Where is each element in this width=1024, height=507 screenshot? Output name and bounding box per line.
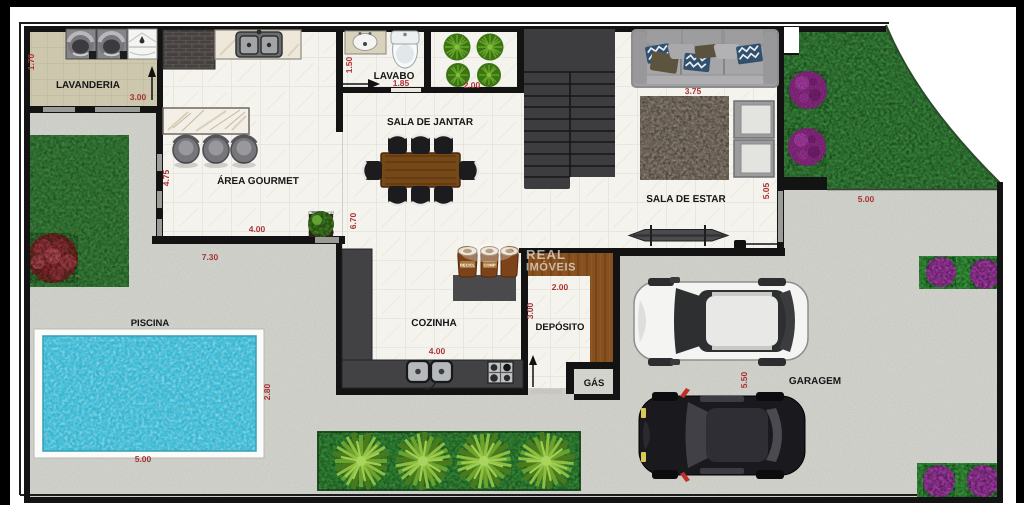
svg-text:REAL: REAL: [526, 247, 566, 262]
svg-text:3.75: 3.75: [685, 86, 702, 96]
svg-text:1.50: 1.50: [344, 56, 354, 73]
svg-text:IMÓVEIS: IMÓVEIS: [526, 261, 576, 274]
svg-text:RECICL: RECICL: [460, 263, 475, 268]
svg-text:7.30: 7.30: [202, 252, 219, 262]
svg-text:1.85: 1.85: [393, 78, 410, 88]
svg-text:GARAGEM: GARAGEM: [789, 376, 841, 387]
svg-text:SALA DE ESTAR: SALA DE ESTAR: [646, 194, 726, 205]
svg-text:DEPÓSITO: DEPÓSITO: [536, 321, 585, 333]
svg-text:4.00: 4.00: [249, 224, 266, 234]
svg-text:3.00: 3.00: [525, 302, 535, 319]
svg-text:6.70: 6.70: [348, 212, 358, 229]
svg-text:4.00: 4.00: [429, 346, 446, 356]
svg-text:5.00: 5.00: [858, 194, 875, 204]
svg-text:5.05: 5.05: [761, 182, 771, 199]
svg-text:2.00: 2.00: [552, 282, 569, 292]
svg-text:2.00: 2.00: [464, 80, 481, 90]
svg-text:5.50: 5.50: [739, 371, 749, 388]
svg-text:PISCINA: PISCINA: [131, 318, 170, 329]
svg-text:ÁREA GOURMET: ÁREA GOURMET: [217, 175, 299, 187]
svg-text:GÁS: GÁS: [584, 377, 605, 389]
svg-text:COZINHA: COZINHA: [411, 318, 457, 329]
svg-text:1.70: 1.70: [26, 53, 36, 70]
svg-text:2.80: 2.80: [262, 383, 272, 400]
svg-text:4.75: 4.75: [161, 169, 171, 186]
svg-text:3.00: 3.00: [130, 92, 147, 102]
svg-text:5.00: 5.00: [135, 454, 152, 464]
svg-text:SALA DE JANTAR: SALA DE JANTAR: [387, 117, 474, 128]
svg-text:COMP: COMP: [484, 263, 496, 268]
svg-text:LAVANDERIA: LAVANDERIA: [56, 80, 120, 91]
